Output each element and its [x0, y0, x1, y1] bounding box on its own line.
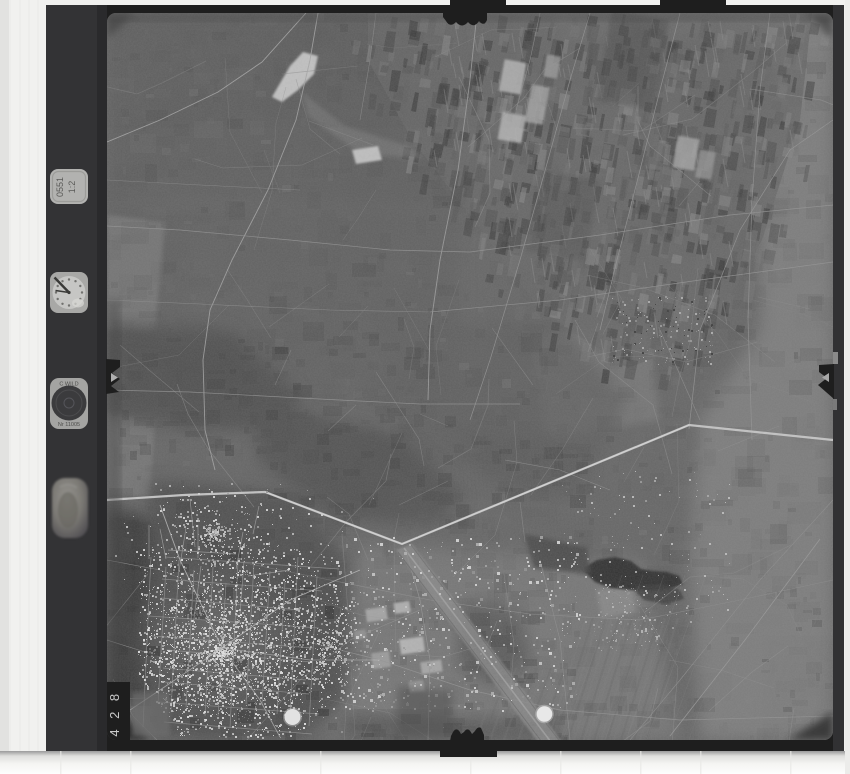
- svg-text:Nr 11005: Nr 11005: [58, 422, 80, 428]
- svg-text:1:2: 1:2: [67, 181, 77, 194]
- svg-text:428: 428: [107, 683, 122, 736]
- svg-text:C WILD: C WILD: [59, 382, 78, 388]
- svg-text:0551: 0551: [55, 177, 65, 197]
